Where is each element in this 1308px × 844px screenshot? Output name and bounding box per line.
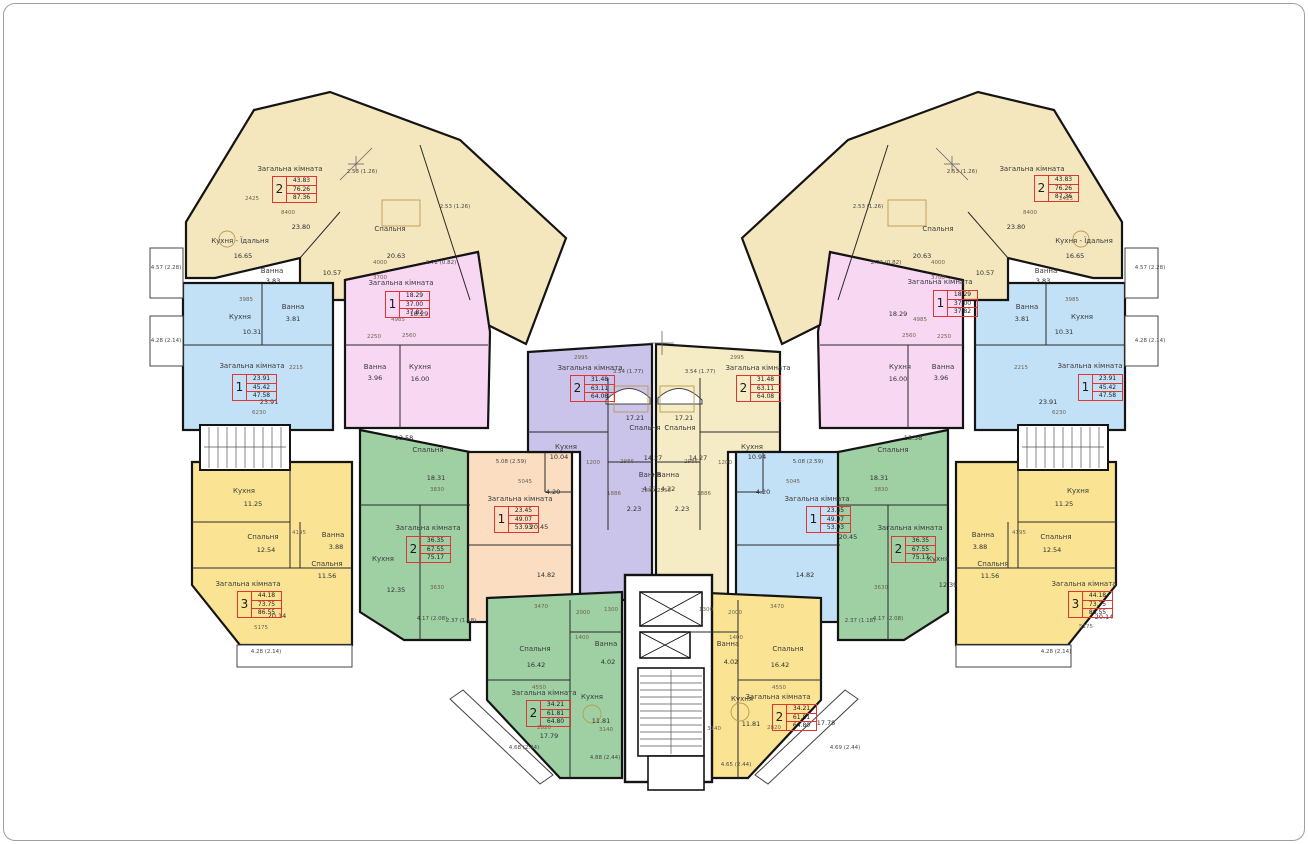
total-area-value: 47.58 (247, 392, 276, 400)
apartment-area-value: 37.00 (400, 301, 429, 310)
room-area-label: 11.25 (1055, 500, 1074, 508)
apartment-info-box-center-right-blue-1room: 123.4549.0753.93 (806, 506, 851, 533)
room-area-label: 11.25 (244, 500, 263, 508)
total-area-value: 75.17 (421, 554, 450, 562)
room-area-label: 12.35 (387, 586, 406, 594)
total-area-value: 47.58 (1093, 392, 1122, 400)
floor-plan: Загальна кімнатаКухня - ЇдальняСпальняВа… (0, 0, 1308, 844)
dimension-label: 1400 (575, 635, 589, 641)
room-label: Спальня (311, 560, 342, 568)
room-area-label: 18.29 (889, 310, 908, 318)
apartment-area-value: 63.11 (751, 385, 780, 394)
room-label: Кухня (229, 313, 251, 321)
living-area-value: 23.45 (821, 507, 850, 516)
dimension-label: 1200 (586, 460, 600, 466)
apartment-area-value: 49.07 (509, 516, 538, 525)
apartment-area-value: 37.00 (948, 300, 977, 309)
apartment-info-box-center-purple-2room: 231.4863.1164.08 (570, 375, 615, 402)
balcony-area-label: 4.57 (2.28) (1135, 265, 1166, 271)
apartment-areas: 18.2937.0037.82 (400, 292, 429, 317)
apartment-rooms-count: 1 (233, 375, 247, 400)
total-area-value: 64.80 (787, 722, 816, 730)
room-area-label: 4.20 (546, 488, 560, 496)
room-area-label: 17.79 (540, 732, 559, 740)
apartment-info-box-top-right-2room: 243.8376.2687.36 (1034, 175, 1079, 202)
room-area-label: 14.82 (537, 571, 556, 579)
room-area-label: 20.45 (839, 533, 858, 541)
dimension-label: 2215 (1014, 365, 1028, 371)
room-area-label: 12.54 (1043, 546, 1062, 554)
room-label: Загальна кімната (487, 495, 552, 503)
room-label: Кухня (409, 363, 431, 371)
room-label: Спальня (519, 645, 550, 653)
room-area-label: 4.02 (724, 658, 738, 666)
apartment-info-box-left-blue-1room: 123.9145.4247.58 (232, 374, 277, 401)
apartment-areas: 31.4863.1164.08 (751, 376, 780, 401)
dimension-label: 2560 (902, 333, 916, 339)
apartment-rooms-count: 2 (273, 177, 287, 202)
room-label: Спальня (877, 446, 908, 454)
dimension-label: 2215 (289, 365, 303, 371)
living-area-value: 23.91 (1093, 375, 1122, 384)
apartment-area-value: 76.26 (287, 186, 316, 195)
balcony-area-label: 4.28 (2.14) (1135, 338, 1166, 344)
balcony-area-label: 4.57 (2.28) (151, 265, 182, 271)
room-area-label: 3.83 (1036, 277, 1050, 285)
dimension-label: 2000 (728, 610, 742, 616)
room-area-label: 3.88 (973, 543, 987, 551)
room-area-label: 3.88 (329, 543, 343, 551)
dimension-label: 1886 (607, 491, 621, 497)
apartment-rooms-count: 2 (773, 705, 787, 730)
living-area-value: 18.29 (400, 292, 429, 301)
room-label: Кухня - Їдальня (1055, 237, 1113, 245)
room-label: Кухня (233, 487, 255, 495)
apartment-info-box-left-3room: 344.1873.7586.55 (237, 591, 282, 618)
living-area-value: 34.21 (541, 701, 570, 710)
living-area-value: 34.21 (787, 705, 816, 714)
apartment-areas: 44.1873.7586.55 (252, 592, 281, 617)
apartment-rooms-count: 2 (571, 376, 585, 401)
apartment-areas: 43.8376.2687.36 (287, 177, 316, 202)
balcony-area-label: 3.54 (1.77) (613, 369, 644, 375)
dimension-label: 1300 (699, 607, 713, 613)
room-area-label: 12.54 (257, 546, 276, 554)
apartment-areas: 36.3567.5575.17 (421, 537, 450, 562)
apartment-info-box-top-left-2room: 243.8376.2687.36 (272, 176, 317, 203)
dimension-label: 1300 (604, 607, 618, 613)
apartment-rooms-count: 3 (238, 592, 252, 617)
dimension-label: 2250 (641, 488, 655, 494)
room-area-label: 10.31 (243, 328, 262, 336)
balcony-area-label: 4.88 (2.44) (590, 755, 621, 761)
room-label: Кухня (889, 363, 911, 371)
living-area-value: 44.18 (252, 592, 281, 601)
balcony-area-label: 2.37 (1.18) (845, 618, 876, 624)
room-area-label: 13.58 (904, 434, 923, 442)
room-area-label: 12.39 (939, 581, 958, 589)
apartment-info-box-right-blue-1room: 123.9145.4247.58 (1078, 374, 1123, 401)
total-area-value: 86.55 (1083, 609, 1112, 617)
room-area-label: 3.83 (266, 277, 280, 285)
total-area-value: 64.08 (585, 393, 614, 401)
apartment-rooms-count: 3 (1069, 592, 1083, 617)
dimension-label: 2560 (402, 333, 416, 339)
apartment-rooms-count: 2 (1035, 176, 1049, 201)
apartment-area-value: 63.11 (585, 385, 614, 394)
room-area-label: 16.00 (411, 375, 430, 383)
dimension-label: 5045 (518, 479, 532, 485)
living-area-value: 43.83 (1049, 176, 1078, 185)
dimension-label: 2425 (245, 196, 259, 202)
apartment-info-box-left-green-2room: 236.3567.5575.17 (406, 536, 451, 563)
living-area-value: 31.48 (751, 376, 780, 385)
room-area-label: 4.02 (601, 658, 615, 666)
room-area-label: 2.23 (627, 505, 641, 513)
room-label: Ванна (972, 531, 995, 539)
room-area-label: 14.27 (644, 454, 663, 462)
dimension-label: 5175 (254, 625, 268, 631)
apartment-info-box-center-cream-2room: 231.4863.1164.08 (736, 375, 781, 402)
balcony-area-label: 4.28 (2.14) (1041, 649, 1072, 655)
apartment-areas: 34.2161.8164.80 (541, 701, 570, 726)
apartment-rooms-count: 2 (527, 701, 541, 726)
apartment-rooms-count: 1 (807, 507, 821, 532)
room-label: Ванна (717, 640, 740, 648)
apartment-info-box-bottom-left-green-2room: 234.2161.8164.80 (526, 700, 571, 727)
apartment-rooms-count: 2 (407, 537, 421, 562)
dimension-label: 3985 (239, 297, 253, 303)
room-label: Ванна (282, 303, 305, 311)
room-area-label: 11.56 (318, 572, 337, 580)
living-area-value: 36.35 (421, 537, 450, 546)
dimension-label: 4985 (391, 317, 405, 323)
living-area-value: 23.91 (247, 375, 276, 384)
room-label: Ванна (932, 363, 955, 371)
living-area-value: 23.45 (509, 507, 538, 516)
dimension-label: 5045 (786, 479, 800, 485)
total-area-value: 37.82 (400, 309, 429, 317)
room-area-label: 3.96 (934, 374, 948, 382)
balcony-area-label: 2.72 (0.82) (426, 260, 457, 266)
room-label: Загальна кімната (999, 165, 1064, 173)
apartment-areas: 43.8376.2687.36 (1049, 176, 1078, 201)
apartment-area-value: 45.42 (247, 384, 276, 393)
living-area-value: 36.35 (906, 537, 935, 546)
room-label: Спальня (374, 225, 405, 233)
room-area-label: 23.91 (1039, 398, 1058, 406)
dimension-label: 4000 (931, 260, 945, 266)
room-area-label: 10.57 (976, 269, 995, 277)
room-area-label: 11.81 (742, 720, 761, 728)
dimension-label: 6230 (1052, 410, 1066, 416)
room-label: Спальня (1040, 533, 1071, 541)
apartment-areas: 18.2937.0037.82 (948, 291, 977, 316)
room-area-label: 18.31 (870, 474, 889, 482)
living-area-value: 18.29 (948, 291, 977, 300)
room-area-label: 3.81 (1015, 315, 1029, 323)
room-label: Загальна кімната (784, 495, 849, 503)
room-area-label: 10.04 (550, 453, 569, 461)
dimension-label: 1886 (697, 491, 711, 497)
apartment-info-box-bottom-right-yellow-2room: 234.2161.8164.80 (772, 704, 817, 731)
apartment-areas: 23.9145.4247.58 (1093, 375, 1122, 400)
room-area-label: 23.80 (1007, 223, 1026, 231)
room-label: Кухня (1071, 313, 1093, 321)
dimension-label: 8400 (1023, 210, 1037, 216)
room-area-label: 16.42 (527, 661, 546, 669)
room-area-label: 16.65 (1066, 252, 1085, 260)
apartment-rooms-count: 1 (495, 507, 509, 532)
apartment-area-value: 61.81 (541, 710, 570, 719)
dimension-label: 6230 (252, 410, 266, 416)
room-label: Ванна (657, 471, 680, 479)
dimension-label: 2986 (684, 459, 698, 465)
balcony-area-label: 4.69 (2.44) (830, 745, 861, 751)
dimension-label: 3470 (770, 604, 784, 610)
room-area-label: 20.63 (913, 252, 932, 260)
dimension-label: 8400 (281, 210, 295, 216)
dimension-label: 4550 (532, 685, 546, 691)
apartment-area-value: 76.26 (1049, 185, 1078, 194)
room-area-label: 3.81 (286, 315, 300, 323)
apartment-rooms-count: 1 (1079, 375, 1093, 400)
total-area-value: 75.17 (906, 554, 935, 562)
room-area-label: 2.23 (675, 505, 689, 513)
total-area-value: 64.08 (751, 393, 780, 401)
apartment-areas: 23.4549.0753.93 (509, 507, 538, 532)
dimension-label: 2250 (657, 488, 671, 494)
room-label: Загальна кімната (1051, 580, 1116, 588)
apartment-area-value: 67.55 (906, 546, 935, 555)
total-area-value: 37.82 (948, 308, 977, 316)
apartment-area-value: 73.75 (252, 601, 281, 610)
dimension-label: 2250 (367, 334, 381, 340)
balcony-area-label: 4.17 (2.08) (417, 616, 448, 622)
room-area-label: 13.58 (395, 434, 414, 442)
room-area-label: 3.96 (368, 374, 382, 382)
balcony-area-label: 2.53 (1.26) (947, 169, 978, 175)
apartment-area-value: 61.81 (787, 714, 816, 723)
room-label: Загальна кімната (745, 693, 810, 701)
balcony-area-label: 5.08 (2.59) (793, 459, 824, 465)
room-area-label: 23.80 (292, 223, 311, 231)
room-label: Ванна (364, 363, 387, 371)
labels-layer: Загальна кімнатаКухня - ЇдальняСпальняВа… (0, 0, 1308, 844)
room-area-label: 20.63 (387, 252, 406, 260)
room-area-label: 10.94 (748, 453, 767, 461)
dimension-label: 2986 (620, 459, 634, 465)
dimension-label: 5175 (1079, 624, 1093, 630)
room-label: Ванна (1035, 267, 1058, 275)
room-label: Кухня (372, 555, 394, 563)
dimension-label: 2000 (576, 610, 590, 616)
total-area-value: 53.93 (821, 524, 850, 532)
room-label: Спальня (772, 645, 803, 653)
living-area-value: 31.48 (585, 376, 614, 385)
dimension-label: 3830 (874, 487, 888, 493)
room-label: Загальна кімната (257, 165, 322, 173)
room-label: Ванна (595, 640, 618, 648)
room-label: Спальня (412, 446, 443, 454)
room-area-label: 18.31 (427, 474, 446, 482)
balcony-area-label: 4.68 (2.44) (509, 745, 540, 751)
room-label: Спальня (629, 424, 660, 432)
apartment-rooms-count: 2 (892, 537, 906, 562)
total-area-value: 87.36 (287, 194, 316, 202)
room-area-label: 10.31 (1055, 328, 1074, 336)
dimension-label: 3470 (534, 604, 548, 610)
apartment-areas: 31.4863.1164.08 (585, 376, 614, 401)
living-area-value: 43.83 (287, 177, 316, 186)
balcony-area-label: 5.08 (2.59) (496, 459, 527, 465)
apartment-area-value: 45.42 (1093, 384, 1122, 393)
balcony-area-label: 4.28 (2.14) (251, 649, 282, 655)
apartment-info-box-left-pink-1room: 118.2937.0037.82 (385, 291, 430, 318)
room-area-label: 16.42 (771, 661, 790, 669)
room-area-label: 17.78 (817, 719, 836, 727)
room-label: Кухня (555, 443, 577, 451)
room-area-label: 17.21 (675, 414, 694, 422)
room-label: Кухня - Їдальня (211, 237, 269, 245)
room-label: Спальня (247, 533, 278, 541)
apartment-info-box-right-3room: 344.1873.7586.55 (1068, 591, 1113, 618)
balcony-area-label: 2.53 (1.26) (440, 204, 471, 210)
dimension-label: 1400 (729, 635, 743, 641)
apartment-areas: 34.2161.8164.80 (787, 705, 816, 730)
room-label: Спальня (977, 560, 1008, 568)
dimension-label: 3140 (599, 727, 613, 733)
balcony-area-label: 4.65 (2.44) (721, 762, 752, 768)
dimension-label: 3140 (707, 726, 721, 732)
room-label: Кухня (741, 443, 763, 451)
room-area-label: 10.57 (323, 269, 342, 277)
dimension-label: 3700 (373, 275, 387, 281)
room-area-label: 4.20 (756, 488, 770, 496)
room-label: Загальна кімната (215, 580, 280, 588)
apartment-areas: 23.4549.0753.93 (821, 507, 850, 532)
room-label: Ванна (261, 267, 284, 275)
room-label: Кухня (1067, 487, 1089, 495)
dimension-label: 3700 (931, 275, 945, 281)
dimension-label: 3630 (874, 585, 888, 591)
room-area-label: 11.81 (592, 717, 611, 725)
room-label: Загальна кімната (395, 524, 460, 532)
total-area-value: 86.55 (252, 609, 281, 617)
balcony-area-label: 2.53 (1.26) (853, 204, 884, 210)
room-label: Спальня (922, 225, 953, 233)
balcony-area-label: 2.37 (1.18) (446, 618, 477, 624)
balcony-area-label: 2.72 (0.82) (871, 260, 902, 266)
balcony-area-label: 3.54 (1.77) (685, 369, 716, 375)
dimension-label: 1200 (718, 460, 732, 466)
room-label: Ванна (322, 531, 345, 539)
dimension-label: 4195 (292, 530, 306, 536)
room-label: Загальна кімната (725, 364, 790, 372)
dimension-label: 3985 (1065, 297, 1079, 303)
balcony-area-label: 2.53 (1.26) (347, 169, 378, 175)
room-area-label: 14.82 (796, 571, 815, 579)
apartment-area-value: 73.75 (1083, 601, 1112, 610)
total-area-value: 87.36 (1049, 193, 1078, 201)
apartment-rooms-count: 2 (737, 376, 751, 401)
dimension-label: 4550 (772, 685, 786, 691)
dimension-label: 4985 (913, 317, 927, 323)
room-label: Спальня (664, 424, 695, 432)
room-area-label: 16.65 (234, 252, 253, 260)
dimension-label: 4000 (373, 260, 387, 266)
apartment-info-box-right-pink-1room: 118.2937.0037.82 (933, 290, 978, 317)
room-label: Кухня (581, 693, 603, 701)
dimension-label: 3630 (430, 585, 444, 591)
dimension-label: 4195 (1012, 530, 1026, 536)
apartment-info-box-right-green-2room: 236.3567.5575.17 (891, 536, 936, 563)
apartment-area-value: 67.55 (421, 546, 450, 555)
room-label: Загальна кімната (1057, 362, 1122, 370)
apartment-rooms-count: 1 (934, 291, 948, 316)
room-label: Ванна (1016, 303, 1039, 311)
total-area-value: 53.93 (509, 524, 538, 532)
apartment-areas: 36.3567.5575.17 (906, 537, 935, 562)
dimension-label: 2995 (730, 355, 744, 361)
apartment-areas: 44.1873.7586.55 (1083, 592, 1112, 617)
apartment-rooms-count: 1 (386, 292, 400, 317)
balcony-area-label: 4.17 (2.08) (873, 616, 904, 622)
balcony-area-label: 4.28 (2.14) (151, 338, 182, 344)
room-label: Загальна кімната (877, 524, 942, 532)
living-area-value: 44.18 (1083, 592, 1112, 601)
room-area-label: 11.56 (981, 572, 1000, 580)
total-area-value: 64.80 (541, 718, 570, 726)
dimension-label: 3830 (430, 487, 444, 493)
apartment-areas: 23.9145.4247.58 (247, 375, 276, 400)
dimension-label: 2250 (937, 334, 951, 340)
apartment-area-value: 49.07 (821, 516, 850, 525)
room-area-label: 17.21 (626, 414, 645, 422)
room-label: Загальна кімната (219, 362, 284, 370)
dimension-label: 2995 (574, 355, 588, 361)
apartment-info-box-center-left-peach-1room: 123.4549.0753.93 (494, 506, 539, 533)
room-area-label: 16.00 (889, 375, 908, 383)
